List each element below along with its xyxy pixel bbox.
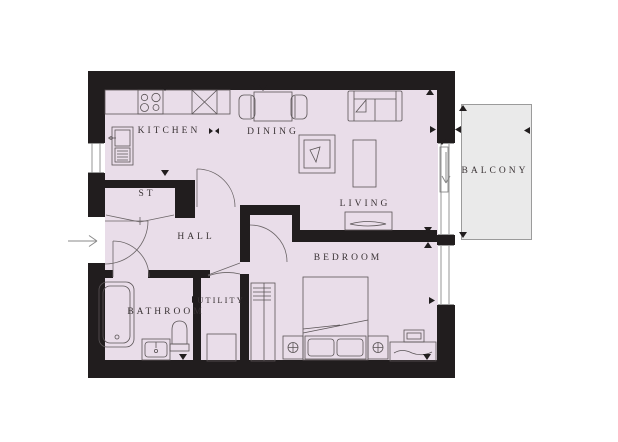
dressing-table-icon [390,342,436,361]
washing-machine-icon [207,334,236,361]
room-label-bathroom: BATHROOM [127,307,204,317]
dining-table-icon [254,92,292,121]
entrance-door-icon [105,221,148,264]
kitchen-counter-icon [105,90,230,114]
kitchen-sink-icon [108,127,133,165]
basin-icon [142,339,170,360]
store-bifold-door-icon [106,215,174,225]
bathroom-door-icon [113,241,149,277]
wardrobe-icon [251,283,275,361]
dining-chair-icon [239,95,307,119]
dimension-markers [161,85,530,360]
bedside-table-icon [283,336,388,359]
coffee-table-icon [353,140,376,187]
utility-door-icon [208,263,240,276]
room-label-store: ST [138,189,155,199]
sofa-icon [348,91,402,121]
stool-icon [404,330,424,342]
room-label-kitchen: KITCHEN [138,126,201,136]
plan-linework [0,0,618,442]
room-label-hall: HALL [177,232,214,242]
oven-unit-icon [192,90,217,114]
floorplan-canvas: KITCHEN DINING LIVING ST HALL BATHROOM U… [0,0,618,442]
toilet-icon [170,321,189,351]
window-frame-lines [88,143,454,305]
bedroom-door-icon [250,225,287,262]
armchair-icon [299,135,335,173]
living-door-icon [197,169,235,207]
tv-unit-icon [345,212,392,230]
entry-arrow-icon [68,236,97,247]
double-bed-icon [303,277,368,360]
room-label-dining: DINING [247,127,299,137]
room-label-living: LIVING [340,199,391,209]
hob-icon [138,90,163,114]
room-label-bedroom: BEDROOM [314,253,383,263]
room-label-balcony: BALCONY [462,166,529,176]
room-label-utility: UTILITY [197,295,245,305]
